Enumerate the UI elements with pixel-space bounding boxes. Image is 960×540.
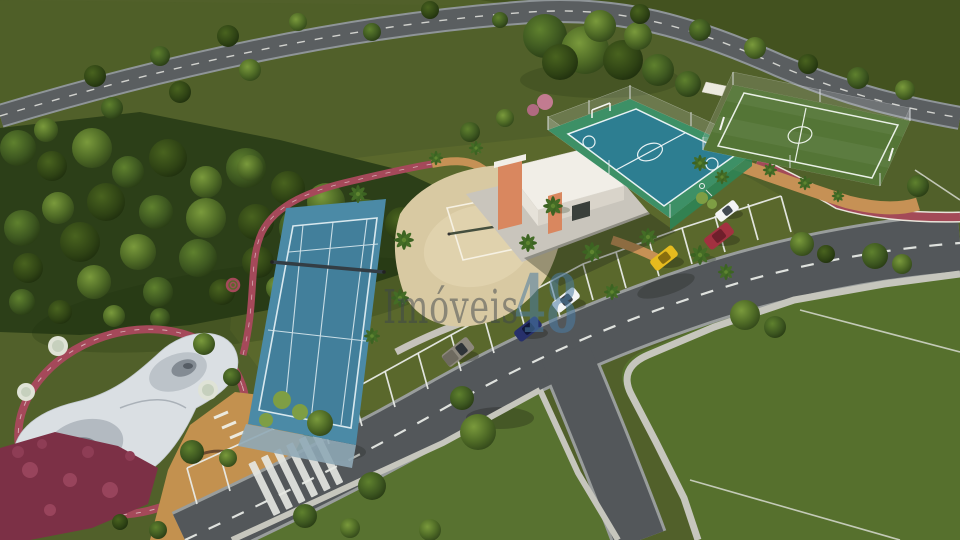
masterplan-render: Imóveis 48 <box>0 0 960 540</box>
spiral-feature <box>227 279 239 291</box>
render-canvas: Imóveis 48 <box>0 0 960 540</box>
clubhouse-tower <box>498 158 522 230</box>
watermark-brand-number: 48 <box>514 257 578 351</box>
flowering-tree <box>537 94 553 110</box>
watermark-brand-text: Imóveis <box>383 280 519 335</box>
